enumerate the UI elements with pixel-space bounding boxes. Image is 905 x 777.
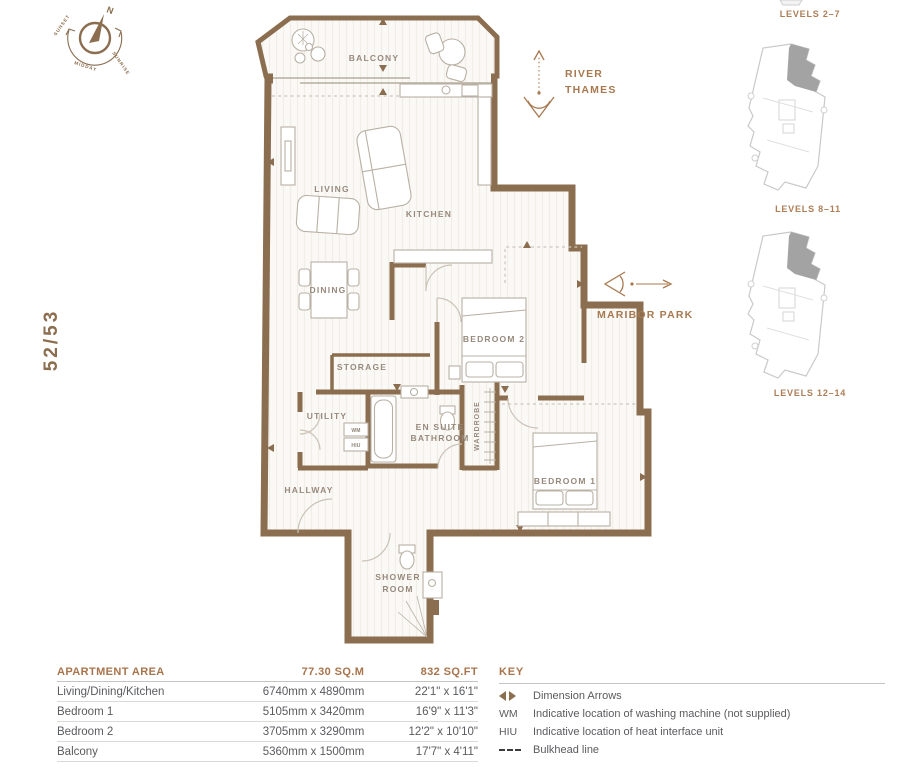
room-name: Balcony	[57, 746, 225, 758]
view-eye-icon	[524, 97, 554, 117]
label-storage: STORAGE	[337, 362, 387, 372]
label-utility: UTILITY	[307, 411, 348, 421]
label-dining: DINING	[310, 285, 347, 295]
wm-symbol: WM	[499, 708, 533, 720]
room-dims-mm: 5360mm x 1500mm	[225, 746, 364, 758]
table-row: Bedroom 2 3705mm x 3290mm 12'2" x 10'10"	[57, 722, 478, 742]
label-ensuite-1: EN SUITE	[416, 422, 465, 432]
unit-number: 52/53	[41, 309, 62, 372]
table-row: Living/Dining/Kitchen 6740mm x 4890mm 22…	[57, 682, 478, 702]
room-dims-ft: 17'7" x 4'11"	[364, 746, 478, 758]
room-dims-mm: 6740mm x 4890mm	[225, 686, 364, 698]
room-name: Bedroom 1	[57, 706, 225, 718]
key-item-label: Indicative location of washing machine (…	[533, 708, 790, 720]
key-item: Bulkhead line	[499, 744, 885, 756]
key-item: Dimension Arrows	[499, 690, 885, 702]
label-river-2: THAMES	[565, 84, 617, 96]
level-diagrams: LEVELS 2–7 LEVELS 8–11 LEVELS 12–14	[748, 0, 846, 398]
hiu-symbol: HIU	[499, 726, 533, 738]
room-dims-ft: 12'2" x 10'10"	[364, 726, 478, 738]
key-item: HIU Indicative location of heat interfac…	[499, 726, 885, 738]
room-name: Bedroom 2	[57, 726, 225, 738]
label-shower-1: SHOWER	[375, 572, 420, 582]
dimension-arrows-icon	[499, 690, 533, 702]
key-item-label: Indicative location of heat interface un…	[533, 726, 723, 738]
tv-unit	[281, 127, 295, 185]
room-dims-mm: 5105mm x 3420mm	[225, 706, 364, 718]
label-maribor-park: MARIBOR PARK	[597, 309, 693, 321]
label-kitchen: KITCHEN	[406, 209, 452, 219]
compass-rose: N SUNSET MIDDAY SUNRISE	[53, 4, 131, 76]
label-hallway: HALLWAY	[284, 485, 333, 495]
label-ensuite-2: BATHROOM	[410, 433, 469, 443]
room-dims-ft: 22'1" x 16'1"	[364, 686, 478, 698]
label-wm: WM	[351, 428, 360, 434]
compass-midday-label: MIDDAY	[74, 60, 98, 72]
tower-diagram-2	[748, 232, 827, 378]
label-shower-2: ROOM	[382, 584, 413, 594]
table-row: Bedroom 1 5105mm x 3420mm 16'9" x 11'3"	[57, 702, 478, 722]
apartment-outline	[264, 80, 648, 640]
label-living: LIVING	[314, 184, 350, 194]
table-header-row: APARTMENT AREA 77.30 SQ.M 832 SQ.FT	[57, 662, 478, 682]
apartment-area-table: APARTMENT AREA 77.30 SQ.M 832 SQ.FT Livi…	[57, 662, 478, 762]
room-dims-mm: 3705mm x 3290mm	[225, 726, 364, 738]
table-header-sqft: 832 SQ.FT	[364, 666, 478, 678]
compass-north-label: N	[105, 4, 115, 16]
shower-wall-nib	[430, 600, 439, 615]
floorplan-page: N SUNSET MIDDAY SUNRISE 52/53	[0, 0, 905, 777]
room-dims-ft: 16'9" x 11'3"	[364, 706, 478, 718]
label-balcony: BALCONY	[349, 53, 399, 63]
bulkhead-line-icon	[499, 744, 533, 756]
table-header-sqm: 77.30 SQ.M	[225, 666, 364, 678]
tower-diagram-1	[748, 44, 827, 190]
key-item: WM Indicative location of washing machin…	[499, 708, 885, 720]
river-thames-indicator: RIVER THAMES	[524, 51, 617, 117]
plan-walls	[258, 18, 648, 640]
maribor-park-indicator: MARIBOR PARK	[597, 272, 693, 321]
label-levels-2-7: LEVELS 2–7	[780, 9, 841, 19]
table-header-name: APARTMENT AREA	[57, 666, 225, 678]
compass-needle	[89, 14, 104, 43]
key-title: KEY	[499, 662, 885, 684]
sofa-2	[296, 195, 360, 235]
key-item-label: Bulkhead line	[533, 744, 599, 756]
label-levels-12-14: LEVELS 12–14	[774, 388, 846, 398]
compass-sunrise-label: SUNRISE	[111, 51, 131, 76]
label-river-1: RIVER	[565, 68, 603, 80]
label-bedroom1: BEDROOM 1	[534, 476, 596, 486]
room-name: Living/Dining/Kitchen	[57, 686, 225, 698]
label-bedroom2: BEDROOM 2	[463, 334, 525, 344]
tower-sliver	[780, 0, 802, 5]
label-levels-8-11: LEVELS 8–11	[775, 204, 841, 214]
label-wardrobe: WARDROBE	[474, 401, 481, 451]
table-row: Balcony 5360mm x 1500mm 17'7" x 4'11"	[57, 742, 478, 762]
key-legend: KEY Dimension Arrows WM Indicative locat…	[499, 662, 885, 756]
view-eye-icon	[605, 272, 625, 296]
label-hiu: HIU	[351, 443, 360, 449]
key-item-label: Dimension Arrows	[533, 690, 622, 702]
floor-plan-canvas: N SUNSET MIDDAY SUNRISE 52/53	[0, 0, 905, 777]
